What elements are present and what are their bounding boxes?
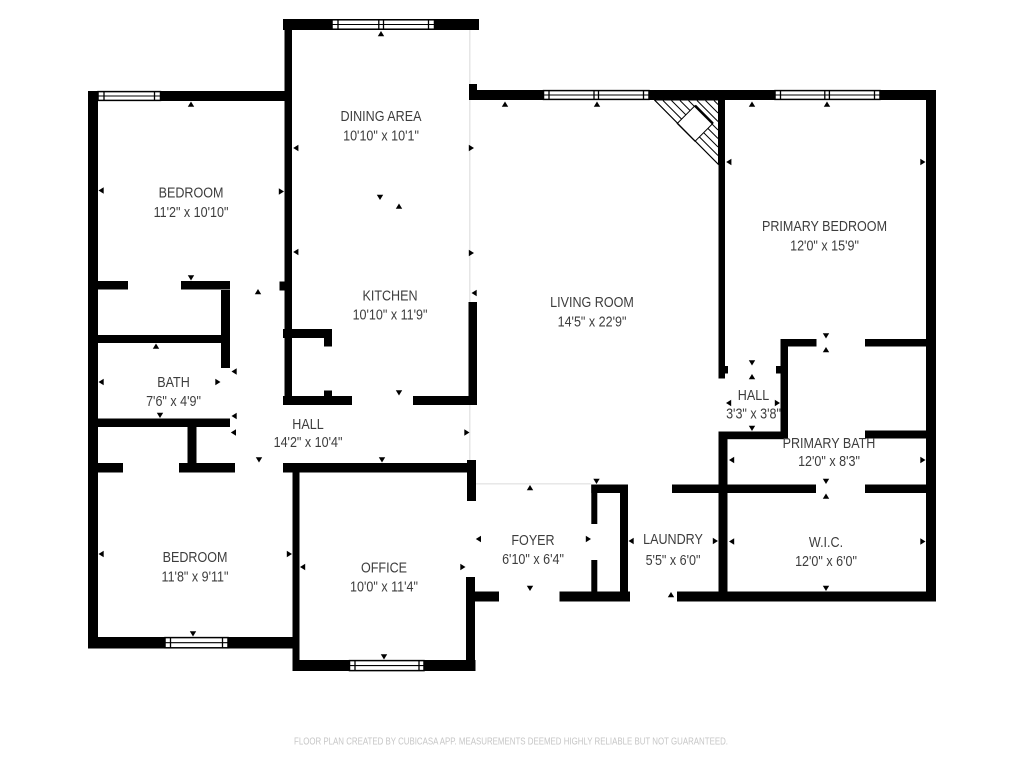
svg-text:PRIMARY BEDROOM: PRIMARY BEDROOM <box>762 218 887 234</box>
svg-text:BEDROOM: BEDROOM <box>159 185 224 201</box>
svg-text:PRIMARY BATH: PRIMARY BATH <box>783 435 876 451</box>
svg-text:KITCHEN: KITCHEN <box>362 288 417 304</box>
svg-text:7'6" x 4'9": 7'6" x 4'9" <box>146 393 201 409</box>
svg-text:FOYER: FOYER <box>511 532 554 548</box>
svg-text:10'10" x 10'1": 10'10" x 10'1" <box>343 128 419 144</box>
svg-text:10'10" x 11'9": 10'10" x 11'9" <box>353 307 428 323</box>
svg-text:BATH: BATH <box>157 374 190 390</box>
svg-text:3'3" x 3'8": 3'3" x 3'8" <box>726 406 781 422</box>
svg-text:FLOOR PLAN CREATED BY CUBICASA: FLOOR PLAN CREATED BY CUBICASA APP. MEAS… <box>294 736 728 747</box>
svg-text:10'0" x 11'4": 10'0" x 11'4" <box>350 579 418 595</box>
svg-text:14'5" x 22'9": 14'5" x 22'9" <box>558 314 627 330</box>
svg-text:12'0" x 15'9": 12'0" x 15'9" <box>790 238 859 254</box>
svg-text:11'2" x 10'10": 11'2" x 10'10" <box>154 204 229 220</box>
svg-text:14'2" x 10'4": 14'2" x 10'4" <box>274 434 343 450</box>
svg-text:6'10" x 6'4": 6'10" x 6'4" <box>502 551 564 567</box>
svg-text:11'8" x 9'11": 11'8" x 9'11" <box>162 569 229 585</box>
svg-text:12'0" x 8'3": 12'0" x 8'3" <box>798 453 860 469</box>
svg-text:LIVING ROOM: LIVING ROOM <box>550 294 634 310</box>
svg-text:DINING AREA: DINING AREA <box>341 108 423 124</box>
svg-text:OFFICE: OFFICE <box>361 560 407 576</box>
svg-text:W.I.C.: W.I.C. <box>809 534 843 550</box>
svg-text:LAUNDRY: LAUNDRY <box>643 531 703 547</box>
svg-text:HALL: HALL <box>738 387 770 403</box>
svg-text:BEDROOM: BEDROOM <box>163 549 228 565</box>
svg-text:HALL: HALL <box>292 416 324 432</box>
svg-text:12'0" x 6'0": 12'0" x 6'0" <box>795 553 857 569</box>
svg-text:5'5" x 6'0": 5'5" x 6'0" <box>646 552 701 568</box>
